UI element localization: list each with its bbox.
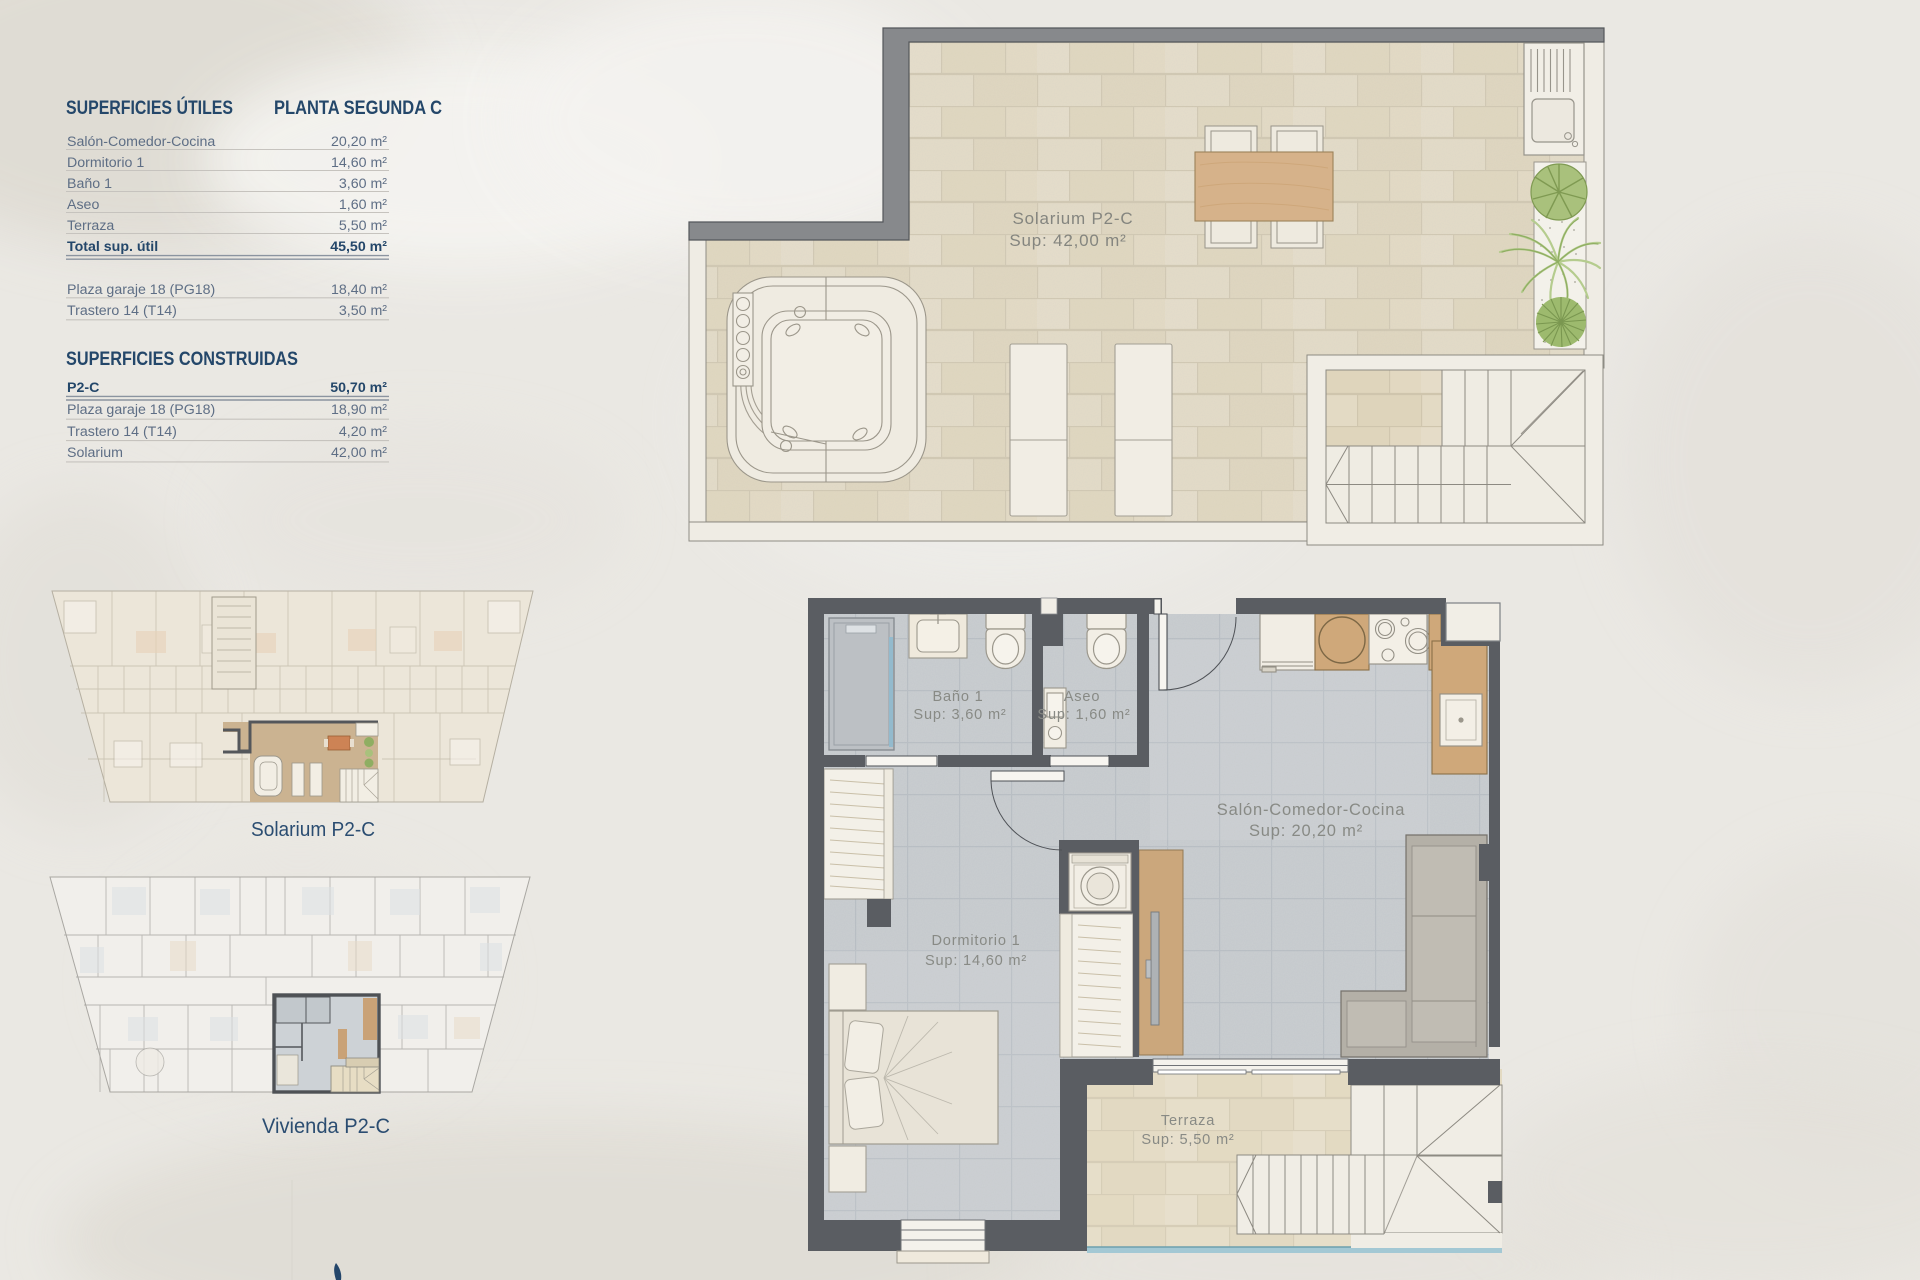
svg-text:Plaza garaje 18 (PG18): Plaza garaje 18 (PG18) — [67, 402, 215, 418]
svg-text:Solarium P2-C: Solarium P2-C — [1013, 209, 1134, 228]
svg-text:Total sup. útil: Total sup. útil — [67, 239, 158, 255]
svg-text:Terraza: Terraza — [67, 218, 114, 234]
svg-text:Sup: 3,60 m²: Sup: 3,60 m² — [913, 707, 1006, 723]
svg-text:Aseo: Aseo — [1064, 689, 1100, 705]
svg-text:Sup: 14,60 m²: Sup: 14,60 m² — [925, 953, 1027, 969]
svg-text:SUPERFICIES CONSTRUIDAS: SUPERFICIES CONSTRUIDAS — [66, 348, 298, 370]
svg-text:20,20 m²: 20,20 m² — [331, 134, 387, 150]
svg-text:Salón-Comedor-Cocina: Salón-Comedor-Cocina — [67, 134, 215, 150]
svg-text:Aseo: Aseo — [67, 197, 99, 213]
svg-text:3,50 m²: 3,50 m² — [339, 303, 387, 319]
svg-text:Baño 1: Baño 1 — [932, 689, 983, 705]
svg-text:Salón-Comedor-Cocina: Salón-Comedor-Cocina — [1217, 801, 1405, 819]
svg-text:18,40 m²: 18,40 m² — [331, 282, 387, 298]
svg-text:Trastero 14 (T14): Trastero 14 (T14) — [67, 303, 177, 319]
svg-text:PLANTA SEGUNDA C: PLANTA SEGUNDA C — [274, 97, 442, 119]
svg-text:1,60 m²: 1,60 m² — [339, 197, 387, 213]
svg-text:Baño 1: Baño 1 — [67, 176, 112, 192]
svg-text:14,60 m²: 14,60 m² — [331, 155, 387, 171]
svg-text:50,70 m²: 50,70 m² — [330, 380, 387, 396]
svg-text:Sup: 5,50 m²: Sup: 5,50 m² — [1141, 1132, 1234, 1148]
svg-text:Dormitorio 1: Dormitorio 1 — [931, 933, 1020, 949]
svg-text:Sup: 20,20 m²: Sup: 20,20 m² — [1249, 822, 1363, 840]
svg-text:Dormitorio 1: Dormitorio 1 — [67, 155, 144, 171]
svg-text:Vivienda P2-C: Vivienda P2-C — [262, 1115, 390, 1138]
svg-text:Terraza: Terraza — [1161, 1113, 1215, 1129]
svg-text:4,20 m²: 4,20 m² — [339, 424, 387, 440]
svg-text:5,50 m²: 5,50 m² — [339, 218, 387, 234]
svg-text:Trastero 14 (T14): Trastero 14 (T14) — [67, 424, 177, 440]
svg-text:SUPERFICIES ÚTILES: SUPERFICIES ÚTILES — [66, 95, 233, 119]
svg-text:P2-C: P2-C — [67, 380, 99, 396]
svg-text:45,50 m²: 45,50 m² — [330, 239, 387, 255]
svg-text:42,00 m²: 42,00 m² — [331, 445, 387, 461]
svg-text:3,60 m²: 3,60 m² — [339, 176, 387, 192]
svg-text:Sup: 42,00 m²: Sup: 42,00 m² — [1009, 231, 1126, 250]
svg-text:Solarium: Solarium — [67, 445, 123, 461]
svg-text:Plaza garaje 18 (PG18): Plaza garaje 18 (PG18) — [67, 282, 215, 298]
svg-text:18,90 m²: 18,90 m² — [331, 402, 387, 418]
svg-text:Sup: 1,60 m²: Sup: 1,60 m² — [1037, 707, 1130, 723]
svg-text:Solarium P2-C: Solarium P2-C — [251, 819, 375, 841]
